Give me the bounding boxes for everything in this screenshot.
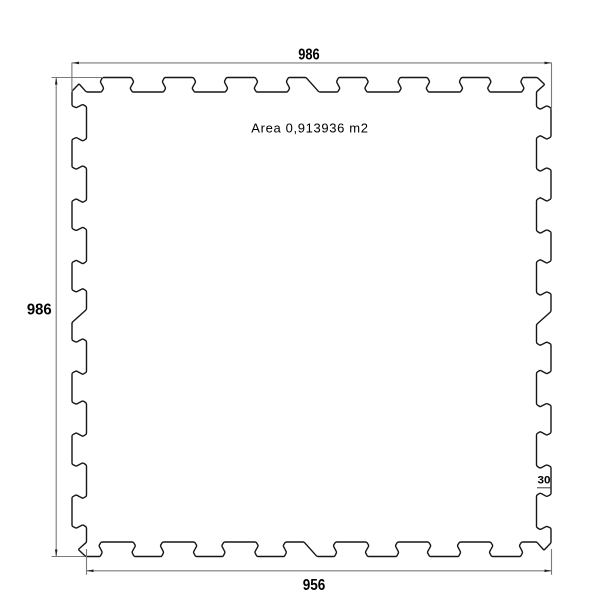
svg-text:30: 30 bbox=[538, 475, 551, 487]
svg-text:986: 986 bbox=[27, 302, 52, 319]
svg-text:Area 0,913936 m2: Area 0,913936 m2 bbox=[251, 121, 368, 136]
svg-text:956: 956 bbox=[303, 577, 326, 594]
svg-text:986: 986 bbox=[298, 46, 320, 63]
